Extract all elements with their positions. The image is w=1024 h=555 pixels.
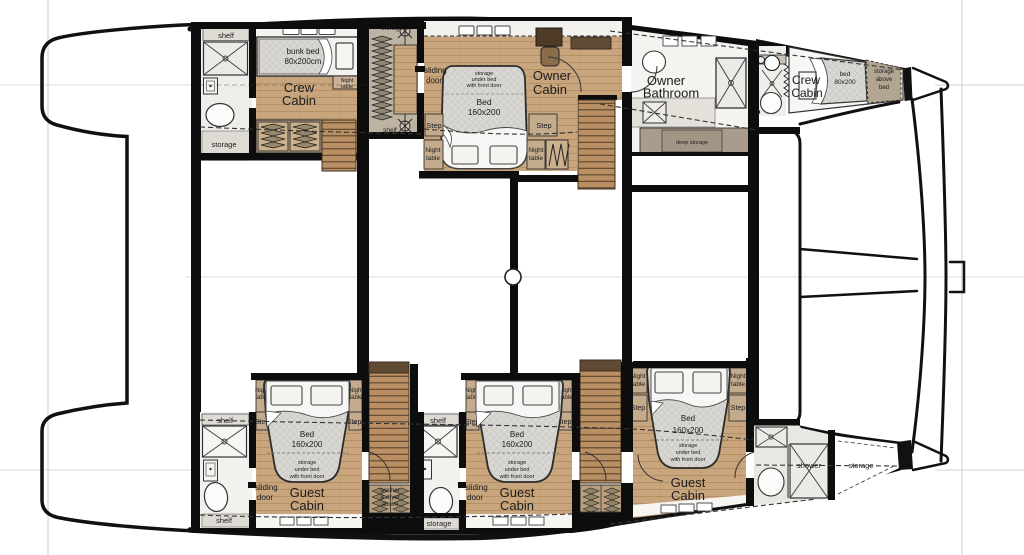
svg-text:Bathroom: Bathroom xyxy=(643,86,699,101)
svg-text:with front door: with front door xyxy=(466,83,502,89)
svg-text:washer: washer xyxy=(379,488,399,494)
svg-text:Cabin: Cabin xyxy=(791,86,822,100)
svg-text:door: door xyxy=(467,493,483,502)
svg-text:Night: Night xyxy=(425,147,440,154)
svg-text:table: table xyxy=(349,395,363,401)
svg-text:Owner: Owner xyxy=(533,68,572,83)
svg-text:& dryer: & dryer xyxy=(380,495,399,501)
svg-text:bed: bed xyxy=(879,85,889,91)
svg-text:Bed: Bed xyxy=(510,430,524,439)
svg-text:under bed: under bed xyxy=(676,450,701,456)
svg-text:Crew: Crew xyxy=(792,73,820,87)
svg-text:Night: Night xyxy=(730,373,745,380)
svg-text:storage: storage xyxy=(298,460,316,466)
svg-text:Cabin: Cabin xyxy=(533,82,567,97)
svg-text:deep storage: deep storage xyxy=(676,140,708,146)
svg-text:shelf: shelf xyxy=(216,516,233,525)
svg-text:160x200: 160x200 xyxy=(468,107,501,117)
svg-text:under bed: under bed xyxy=(505,467,530,473)
svg-text:80x200: 80x200 xyxy=(834,79,856,86)
svg-text:above: above xyxy=(382,502,399,508)
svg-text:sliding: sliding xyxy=(255,483,278,492)
svg-text:Cabin: Cabin xyxy=(671,488,705,503)
svg-text:sliding: sliding xyxy=(465,483,488,492)
svg-text:Step: Step xyxy=(536,121,551,130)
svg-text:Night: Night xyxy=(528,147,543,154)
svg-text:80x200cm: 80x200cm xyxy=(285,57,322,66)
svg-text:shelf: shelf xyxy=(218,31,235,40)
svg-text:under bed: under bed xyxy=(295,467,320,473)
svg-text:160x200: 160x200 xyxy=(292,440,323,449)
svg-text:shelf: shelf xyxy=(430,416,447,425)
svg-text:with front door: with front door xyxy=(289,474,325,480)
svg-text:sliding: sliding xyxy=(424,66,447,75)
svg-text:Night: Night xyxy=(349,388,363,394)
svg-text:Bed: Bed xyxy=(476,97,491,107)
svg-text:Cabin: Cabin xyxy=(282,93,316,108)
svg-text:Cabin: Cabin xyxy=(290,498,324,513)
svg-text:Bed: Bed xyxy=(300,430,314,439)
svg-text:bed: bed xyxy=(840,71,851,78)
svg-text:Step: Step xyxy=(426,121,441,130)
svg-text:storage: storage xyxy=(426,519,451,528)
svg-text:door: door xyxy=(426,76,442,85)
svg-text:door: door xyxy=(257,493,273,502)
svg-text:table: table xyxy=(529,155,543,162)
svg-text:above: above xyxy=(876,77,893,83)
svg-text:storage: storage xyxy=(211,140,236,149)
svg-text:table: table xyxy=(631,381,645,388)
svg-text:table: table xyxy=(426,155,440,162)
svg-text:storage: storage xyxy=(679,443,697,449)
svg-text:Bed: Bed xyxy=(681,414,695,423)
svg-text:Cabin: Cabin xyxy=(500,498,534,513)
svg-text:Step: Step xyxy=(731,405,746,412)
svg-text:storage: storage xyxy=(508,460,526,466)
svg-text:with front door: with front door xyxy=(670,457,706,463)
svg-text:bunk bed: bunk bed xyxy=(287,47,320,56)
svg-text:with front door: with front door xyxy=(499,474,535,480)
svg-text:160x200: 160x200 xyxy=(502,440,533,449)
svg-text:storage: storage xyxy=(874,69,895,75)
svg-text:table: table xyxy=(731,381,745,388)
